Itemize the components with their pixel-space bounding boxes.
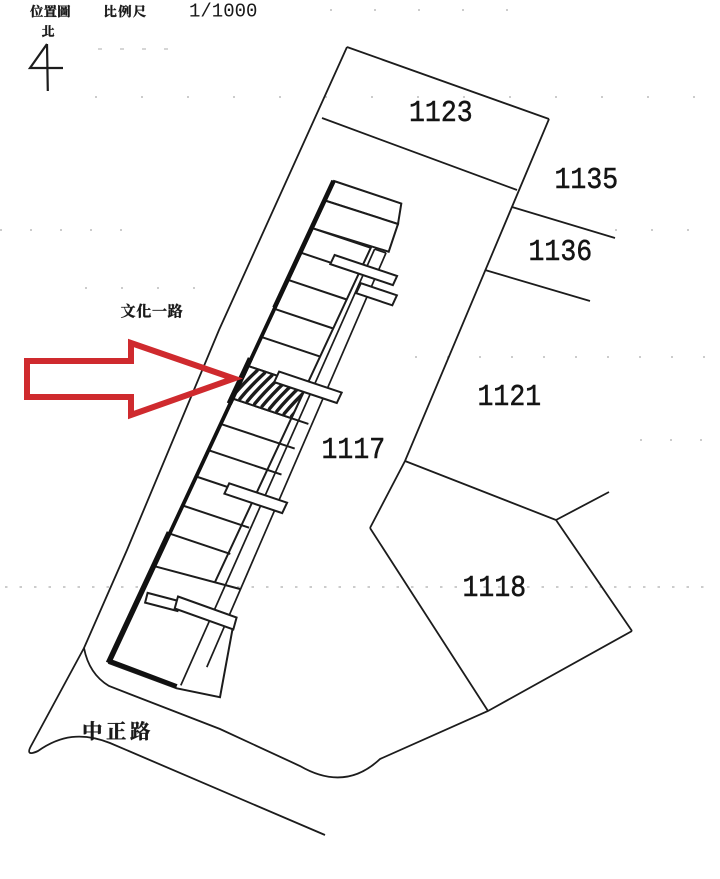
svg-text:1136: 1136 (529, 234, 593, 269)
svg-text:1118: 1118 (463, 570, 527, 605)
svg-text:1117: 1117 (322, 432, 386, 467)
svg-text:1/1000: 1/1000 (189, 1, 257, 23)
svg-text:1135: 1135 (555, 162, 619, 197)
svg-text:1123: 1123 (409, 95, 473, 130)
svg-text:1121: 1121 (478, 379, 542, 414)
